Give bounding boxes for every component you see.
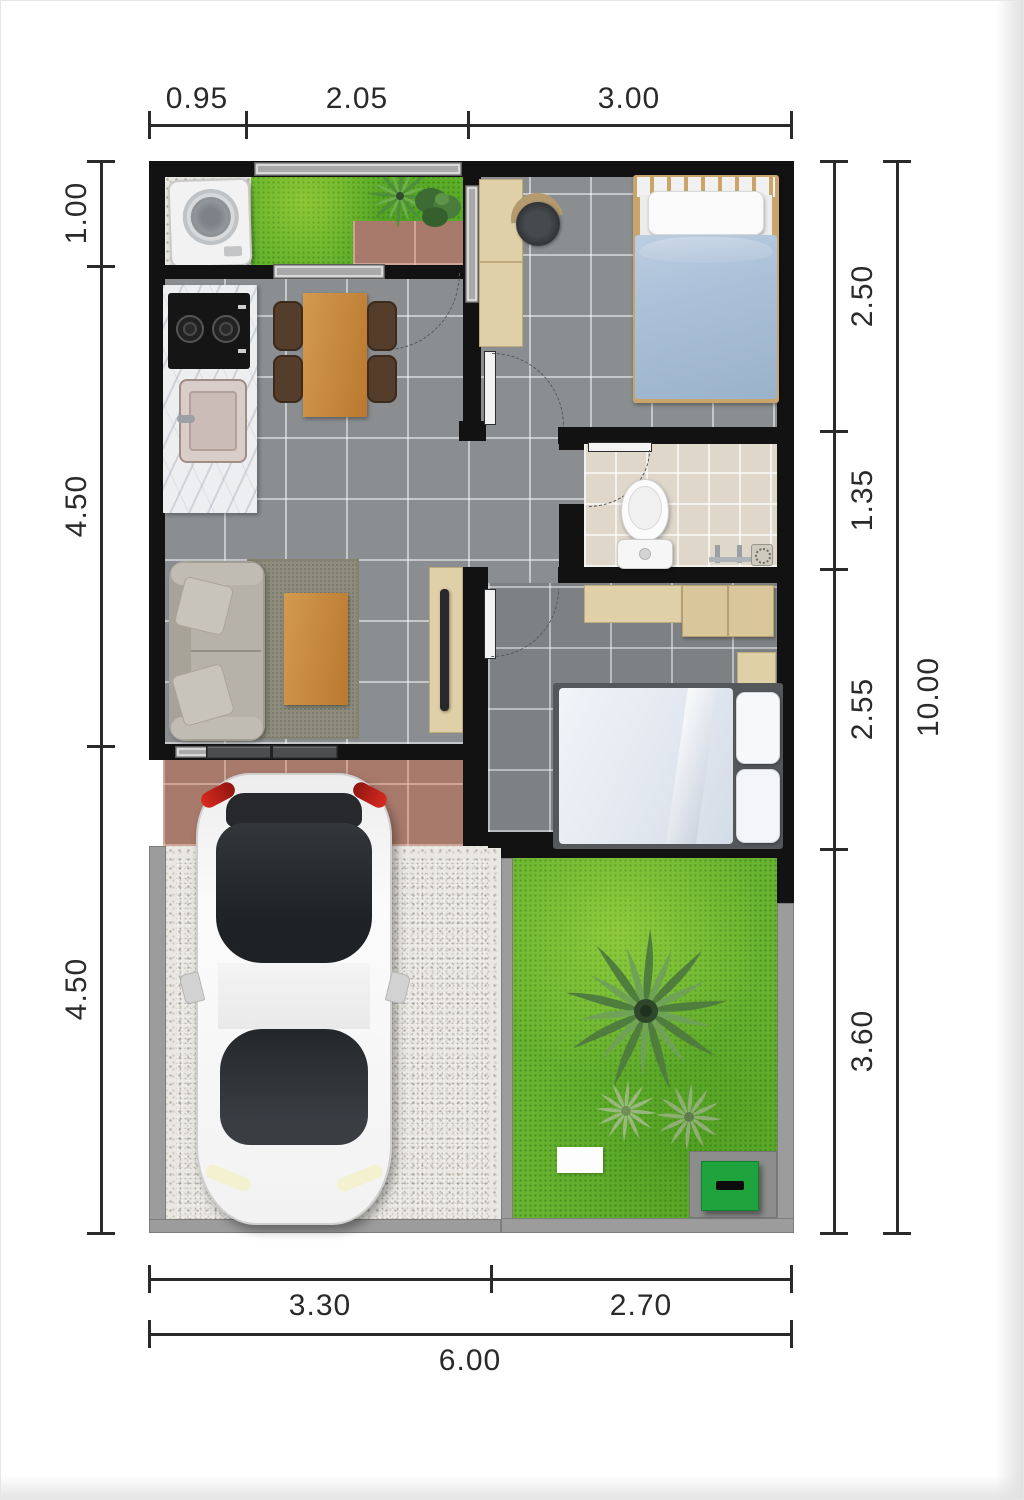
bed2-pillow-1 (736, 692, 780, 764)
dining-chair-4 (367, 355, 397, 403)
front-door (206, 745, 338, 759)
tick (148, 1320, 151, 1348)
tick (87, 265, 115, 268)
wardrobe-left (584, 585, 682, 623)
dim-right-2: 2.55 (846, 678, 880, 740)
utility-box (701, 1161, 759, 1211)
wall-doorfoot (459, 421, 486, 441)
dining-chair-1 (273, 301, 303, 351)
dim-right-3: 3.60 (846, 1010, 880, 1072)
car-windshield (220, 1029, 368, 1145)
dim-top-2: 3.00 (598, 82, 660, 116)
dim-bottom-0: 3.30 (289, 1289, 351, 1323)
tick (148, 111, 151, 139)
drain-grate (755, 548, 771, 564)
tick (883, 160, 911, 163)
window-kitchen-service (273, 264, 385, 279)
dim-left-1: 4.50 (60, 475, 94, 537)
bed2-fold (666, 688, 718, 844)
dim-line-bottom-outer (149, 1333, 791, 1336)
stove (168, 293, 250, 369)
shrub-2 (653, 1081, 725, 1153)
burner-right (212, 315, 240, 343)
dim-left-0: 1.00 (60, 182, 94, 244)
tv-console (429, 567, 463, 733)
sink-basin (189, 391, 237, 451)
palm-tree (556, 921, 736, 1101)
bed1-blanket (635, 235, 777, 399)
tick (490, 1265, 493, 1293)
garden-curb-right (777, 903, 794, 1219)
shower-faucet (709, 545, 751, 565)
car-trunk (226, 793, 362, 827)
tick (148, 1265, 151, 1293)
bed1-pillow (648, 191, 764, 235)
dim-line-right-outer (896, 161, 899, 1233)
page-shadow-bottom (1, 1475, 1024, 1500)
tv (440, 589, 449, 711)
page-shadow-right (995, 1, 1024, 1500)
stepping-stone (557, 1147, 603, 1173)
tick (87, 1232, 115, 1235)
car (196, 773, 392, 1225)
wardrobe-divider (727, 585, 729, 637)
double-bed (553, 683, 783, 849)
tick (245, 111, 248, 139)
window-service-top (254, 162, 462, 176)
tick (883, 1232, 911, 1235)
tick (820, 160, 848, 163)
tick (790, 111, 793, 139)
dim-line-left (100, 161, 103, 1233)
shrub-1 (592, 1077, 660, 1145)
car-roof (218, 963, 370, 1029)
desk-divider (479, 261, 523, 263)
carport-curb-left (149, 846, 166, 1233)
tick (820, 1232, 848, 1235)
toilet-seat (628, 486, 662, 530)
toilet-button (639, 548, 651, 560)
tick (87, 745, 115, 748)
desk-chair-seat (516, 202, 560, 246)
washer-panel (224, 246, 242, 257)
tick (790, 1265, 793, 1293)
car-rear-glass (216, 823, 372, 963)
wardrobe-right (682, 585, 774, 637)
dim-line-right-inner (833, 161, 836, 1233)
dining-chair-3 (367, 301, 397, 351)
wall-bath-west-top (559, 427, 584, 450)
dim-right-0: 2.50 (846, 265, 880, 327)
washing-machine (167, 178, 252, 269)
dim-top-0: 0.95 (166, 82, 228, 116)
sofa-cushion-line (191, 650, 261, 652)
dim-right-1: 1.35 (846, 469, 880, 531)
window-bedroom1-service (465, 185, 479, 303)
front-door-split (270, 745, 273, 759)
tick (87, 160, 115, 163)
service-shrub (409, 179, 467, 237)
sofa (169, 561, 265, 741)
tick (467, 111, 470, 139)
single-bed (633, 175, 779, 403)
floor-plan-page: 0.95 2.05 3.00 1.00 4.50 4.50 2.50 1.35 … (0, 0, 1024, 1500)
coffee-table (284, 593, 348, 705)
dim-top-1: 2.05 (326, 82, 388, 116)
kitchen-sink (179, 379, 247, 463)
garden-curb-bottom (501, 1218, 794, 1233)
utility-box-slot (716, 1181, 744, 1190)
tick (820, 430, 848, 433)
dim-left-2: 4.50 (60, 958, 94, 1020)
toilet (615, 479, 673, 571)
dim-line-bottom-inner (149, 1278, 791, 1281)
carport-slabs-right (378, 859, 488, 1219)
bed2-mattress (559, 688, 733, 844)
dining-chair-2 (273, 355, 303, 403)
floor-drain (751, 544, 773, 566)
dim-bottom-total: 6.00 (439, 1344, 501, 1378)
desk-chair (509, 191, 569, 255)
tick (820, 848, 848, 851)
garden (501, 844, 794, 1233)
dim-right-total: 10.00 (912, 657, 946, 737)
stove-knob (238, 305, 246, 309)
bed2-pillow-2 (736, 769, 780, 843)
garden-curb-left (501, 858, 513, 1219)
tick (820, 568, 848, 571)
bed1-blanket-fold (639, 237, 773, 263)
faucet-bar (709, 557, 751, 562)
burner-left (176, 315, 204, 343)
sink-faucet (177, 415, 195, 423)
tick (790, 1320, 793, 1348)
stove-knob2 (238, 349, 246, 353)
dim-bottom-1: 2.70 (610, 1289, 672, 1323)
dining-table (303, 293, 367, 417)
